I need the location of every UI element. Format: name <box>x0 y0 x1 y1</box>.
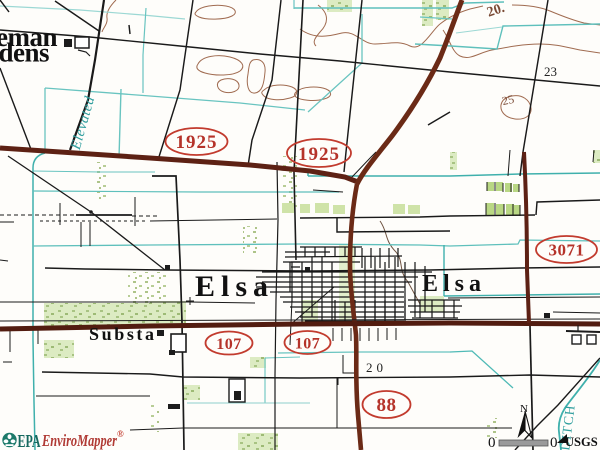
svg-text:107: 107 <box>295 336 321 353</box>
svg-text:3071: 3071 <box>549 241 585 260</box>
svg-text:1925: 1925 <box>176 132 218 153</box>
svg-text:0: 0 <box>488 435 496 450</box>
svg-text:N: N <box>520 403 528 415</box>
svg-text:EPA: EPA <box>18 431 41 450</box>
svg-text:Substa: Substa <box>89 324 157 344</box>
svg-text:®: ® <box>117 429 124 439</box>
svg-text:107: 107 <box>216 336 242 353</box>
svg-text:20: 20 <box>366 360 387 375</box>
svg-text:0: 0 <box>550 435 558 450</box>
svg-text:USGS: USGS <box>565 435 598 449</box>
svg-text:rdens: rdens <box>0 38 49 68</box>
svg-text:Elsa: Elsa <box>195 270 274 303</box>
svg-text:1925: 1925 <box>298 144 340 165</box>
svg-text:EnviroMapper: EnviroMapper <box>41 431 117 450</box>
svg-text:23: 23 <box>544 64 557 79</box>
svg-text:Elsa: Elsa <box>422 271 486 297</box>
svg-text:88: 88 <box>377 395 397 416</box>
